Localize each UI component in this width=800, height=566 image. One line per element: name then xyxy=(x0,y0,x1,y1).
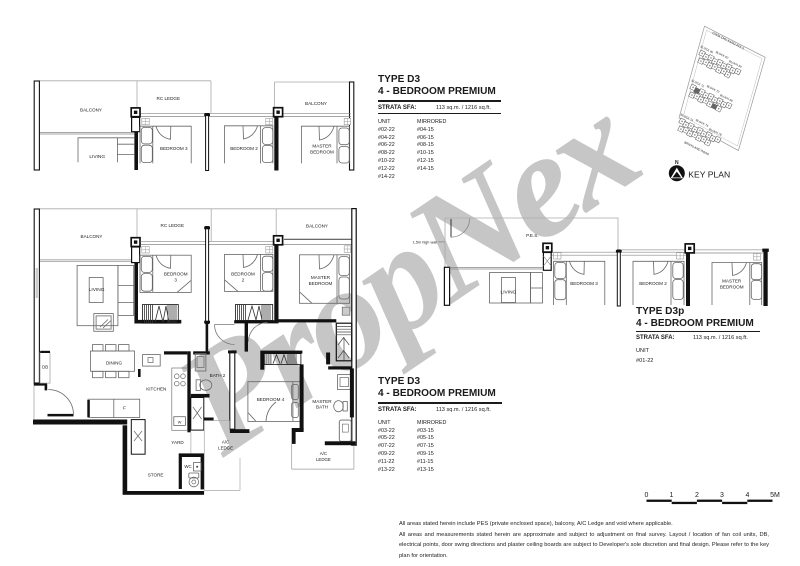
svg-text:LEDGE: LEDGE xyxy=(218,446,233,451)
svg-text:BEDROOM 3: BEDROOM 3 xyxy=(160,146,188,151)
svg-text:BEDROOM: BEDROOM xyxy=(164,272,188,277)
svg-text:BEDROOM: BEDROOM xyxy=(720,285,744,290)
svg-text:P.E.S.: P.E.S. xyxy=(526,233,538,238)
svg-text:BALCONY: BALCONY xyxy=(81,234,103,239)
svg-text:BEDROOM 4: BEDROOM 4 xyxy=(257,397,285,402)
svg-text:1.5m high wall: 1.5m high wall xyxy=(413,240,437,244)
svg-text:KEY PLAN: KEY PLAN xyxy=(688,170,730,180)
svg-text:BEDROOM 3: BEDROOM 3 xyxy=(570,281,598,286)
svg-text:LIVING: LIVING xyxy=(89,154,105,160)
svg-text:BEDROOM: BEDROOM xyxy=(231,272,255,277)
svg-text:LEDGE: LEDGE xyxy=(316,457,331,462)
svg-text:MASTER: MASTER xyxy=(311,275,331,280)
svg-text:BLOCK 82: BLOCK 82 xyxy=(715,50,729,60)
svg-text:CHOA CHU KANG AVE 5: CHOA CHU KANG AVE 5 xyxy=(712,31,745,51)
svg-text:F: F xyxy=(123,406,126,411)
svg-text:DINING: DINING xyxy=(106,360,123,365)
svg-text:5M: 5M xyxy=(770,492,780,499)
svg-text:MASTER: MASTER xyxy=(722,279,742,284)
svg-text:BALCONY: BALCONY xyxy=(306,224,328,229)
svg-text:4: 4 xyxy=(746,492,750,499)
svg-text:1: 1 xyxy=(670,492,674,499)
svg-text:3: 3 xyxy=(174,278,177,283)
svg-text:A/C: A/C xyxy=(320,451,327,456)
svg-text:MASTER: MASTER xyxy=(312,143,332,148)
svg-text:MASTER: MASTER xyxy=(312,399,332,404)
svg-text:0: 0 xyxy=(645,492,649,499)
svg-text:BATH 2: BATH 2 xyxy=(210,373,226,378)
svg-text:RC LEDGE: RC LEDGE xyxy=(157,96,181,101)
svg-text:YARD: YARD xyxy=(171,440,184,445)
svg-text:BEDROOM: BEDROOM xyxy=(310,149,334,154)
svg-text:2: 2 xyxy=(242,278,245,283)
svg-text:BEDROOM 2: BEDROOM 2 xyxy=(639,281,667,286)
svg-text:2: 2 xyxy=(695,492,699,499)
svg-text:BLOCK 70: BLOCK 70 xyxy=(706,84,720,94)
svg-text:BATH: BATH xyxy=(316,405,328,410)
svg-text:A/C: A/C xyxy=(222,440,229,445)
svg-text:3: 3 xyxy=(720,492,724,499)
svg-text:STORE: STORE xyxy=(148,472,164,477)
svg-text:RC LEDGE: RC LEDGE xyxy=(161,223,185,228)
svg-text:W: W xyxy=(178,420,182,424)
svg-text:BALCONY: BALCONY xyxy=(305,101,327,106)
svg-text:BEDROOM: BEDROOM xyxy=(309,281,333,286)
svg-text:LIVING: LIVING xyxy=(89,287,105,293)
svg-text:WC: WC xyxy=(184,464,191,469)
svg-text:KITCHEN: KITCHEN xyxy=(146,386,166,391)
svg-text:DB: DB xyxy=(42,365,48,370)
svg-text:LIVING: LIVING xyxy=(501,290,517,296)
svg-text:BEDROOM 2: BEDROOM 2 xyxy=(230,146,258,151)
svg-text:BALCONY: BALCONY xyxy=(80,108,102,113)
